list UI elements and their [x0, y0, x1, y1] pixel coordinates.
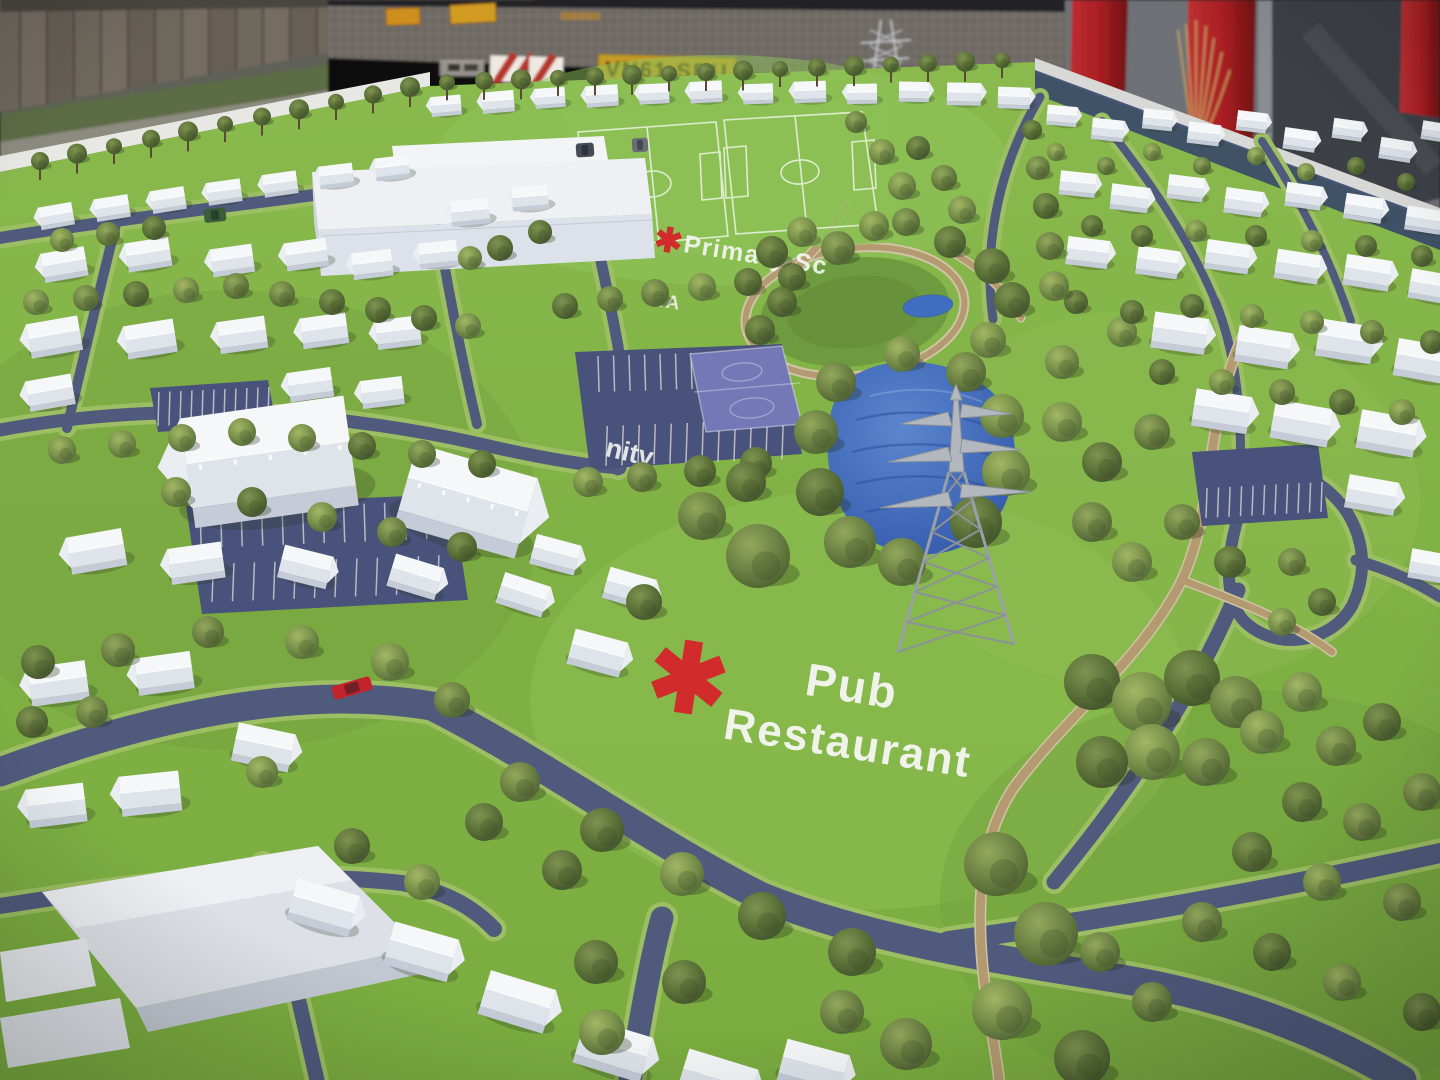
model-photograph: VN61 SBU	[0, 0, 1440, 1080]
photo-of-architectural-model: VN61 SBU	[0, 0, 1440, 1080]
vignette	[0, 0, 1440, 1080]
